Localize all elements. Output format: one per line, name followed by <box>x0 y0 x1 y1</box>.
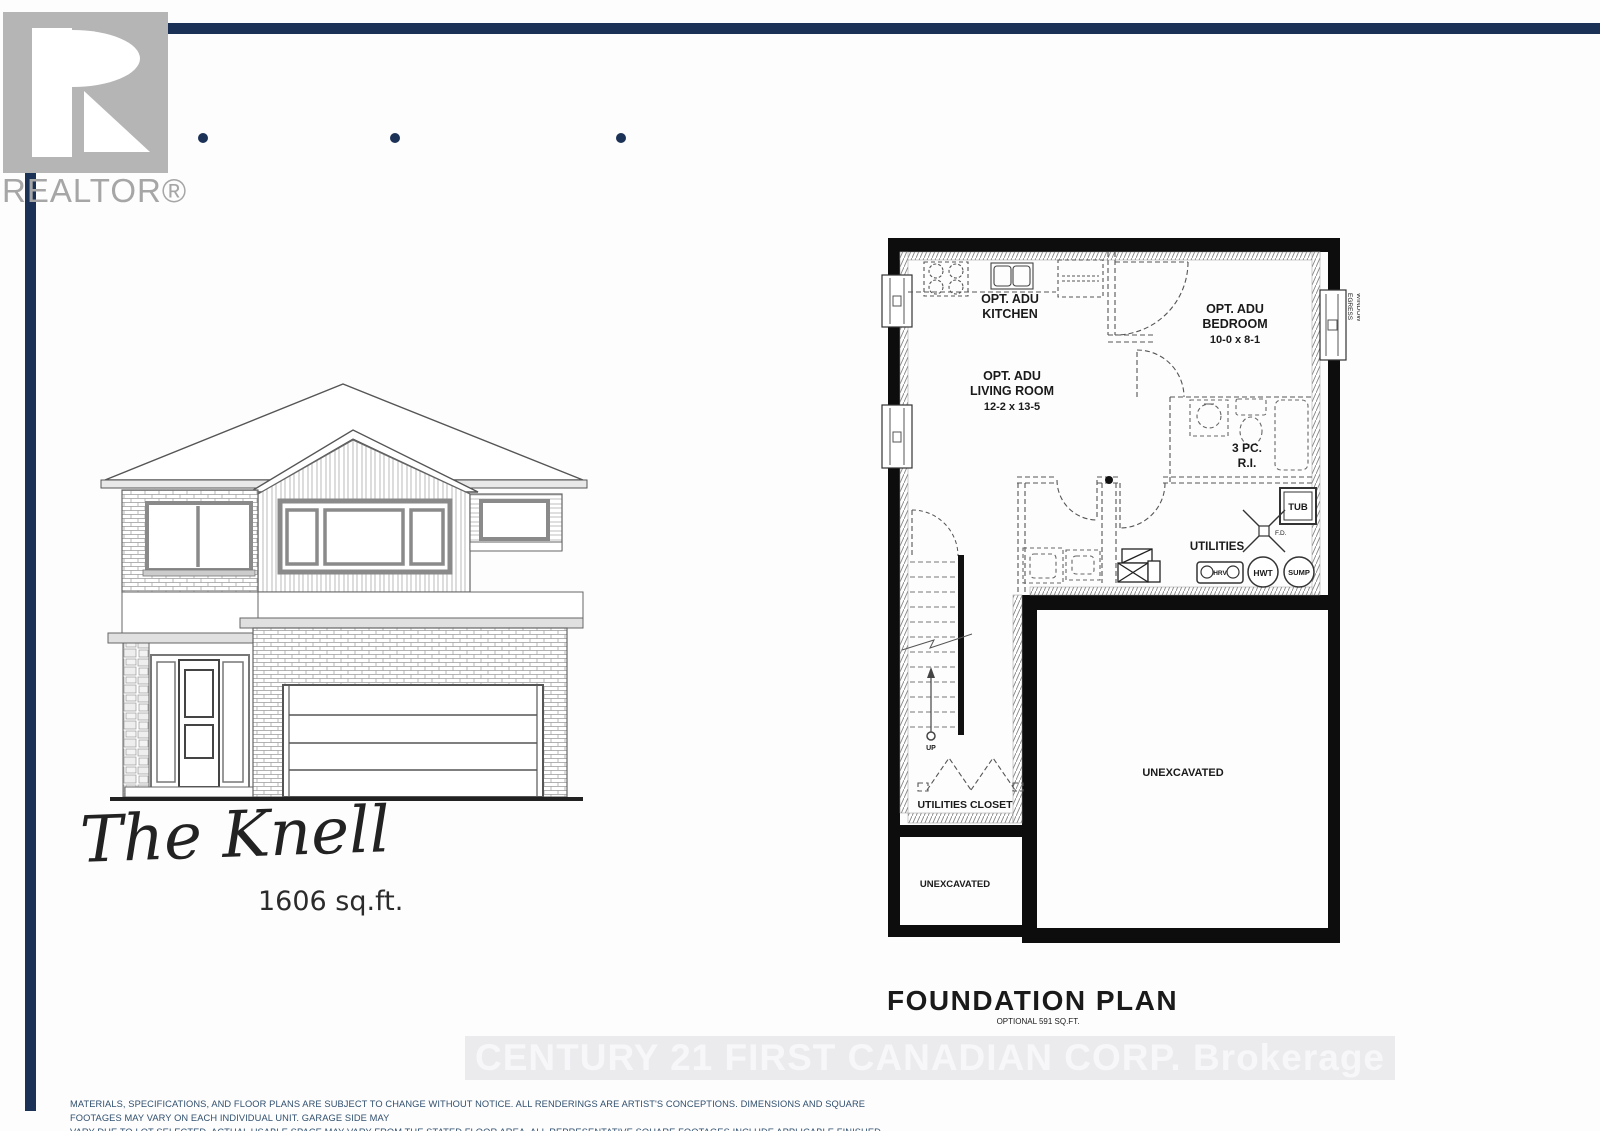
realtor-logo-icon <box>3 12 168 173</box>
bedroom-dims-label: 10-0 x 8-1 <box>1210 334 1260 346</box>
bullet-dot <box>198 133 208 143</box>
interior-partitions <box>1017 252 1312 595</box>
bedroom-label-line2: BEDROOM <box>1202 317 1267 331</box>
foundation-plan-title: FOUNDATION PLAN <box>887 985 1178 1016</box>
egress-window-label: EGRESS WINDOW <box>1346 293 1360 322</box>
bullet-dot <box>390 133 400 143</box>
sump-label: SUMP <box>1288 568 1310 577</box>
unexcavated-small-label: UNEXCAVATED <box>920 879 990 890</box>
house-elevation-drawing <box>85 370 595 810</box>
kitchen-label-line1: OPT. ADU <box>981 292 1039 306</box>
living-label-line2: LIVING ROOM <box>970 384 1054 398</box>
utilities-closet-label: UTILITIES CLOSET <box>917 799 1013 811</box>
bath-label-line1: 3 PC. <box>1232 441 1262 455</box>
living-label-line1: OPT. ADU <box>983 369 1041 383</box>
egress-label-line1: EGRESS <box>1346 293 1353 321</box>
stairs-up-label: UP <box>926 745 936 752</box>
unexcavated-large-label: UNEXCAVATED <box>1142 767 1223 779</box>
basement-windows <box>882 275 1346 468</box>
disclaimer-line2: VARY DUE TO LOT SELECTED. ACTUAL USABLE … <box>70 1125 910 1131</box>
model-name-signature: The Knell <box>79 792 421 878</box>
disclaimer-line1: MATERIALS, SPECIFICATIONS, AND FLOOR PLA… <box>70 1097 910 1125</box>
square-footage-label: 1606 sq.ft. <box>258 886 403 917</box>
foundation-plan-drawing: EGRESS WINDOW OPT. ADU KITCHEN OPT. AD <box>860 150 1360 1030</box>
realtor-logo-text: REALTOR® <box>2 172 222 210</box>
laundry-fixtures <box>1023 548 1100 583</box>
hwt-label: HWT <box>1253 568 1273 578</box>
brokerage-watermark: CENTURY 21 FIRST CANADIAN CORP. Brokerag… <box>465 1036 1395 1080</box>
bedroom-label-line1: OPT. ADU <box>1206 302 1264 316</box>
furnace-boxes <box>1118 549 1160 582</box>
utilities-label: UTILITIES <box>1190 541 1245 553</box>
wall-junction-dot <box>1105 476 1113 484</box>
foundation-plan-subtitle: OPTIONAL 591 SQ.FT. <box>997 1017 1080 1026</box>
bath-label-line2: R.I. <box>1238 456 1257 470</box>
flyer-page: REALTOR® <box>0 0 1600 1131</box>
bullet-dot <box>616 133 626 143</box>
living-dims-label: 12-2 x 13-5 <box>984 401 1040 413</box>
tub-label: TUB <box>1288 502 1308 513</box>
top-border-line <box>25 23 1600 34</box>
floor-drain-label: F.D. <box>1275 530 1287 537</box>
egress-label-line2: WINDOW <box>1355 293 1360 322</box>
staircase <box>902 510 972 740</box>
disclaimer-text: MATERIALS, SPECIFICATIONS, AND FLOOR PLA… <box>70 1097 910 1131</box>
hrv-label: HRV <box>1213 570 1227 577</box>
kitchen-label-line2: KITCHEN <box>982 307 1038 321</box>
bifold-doors <box>918 758 1023 791</box>
